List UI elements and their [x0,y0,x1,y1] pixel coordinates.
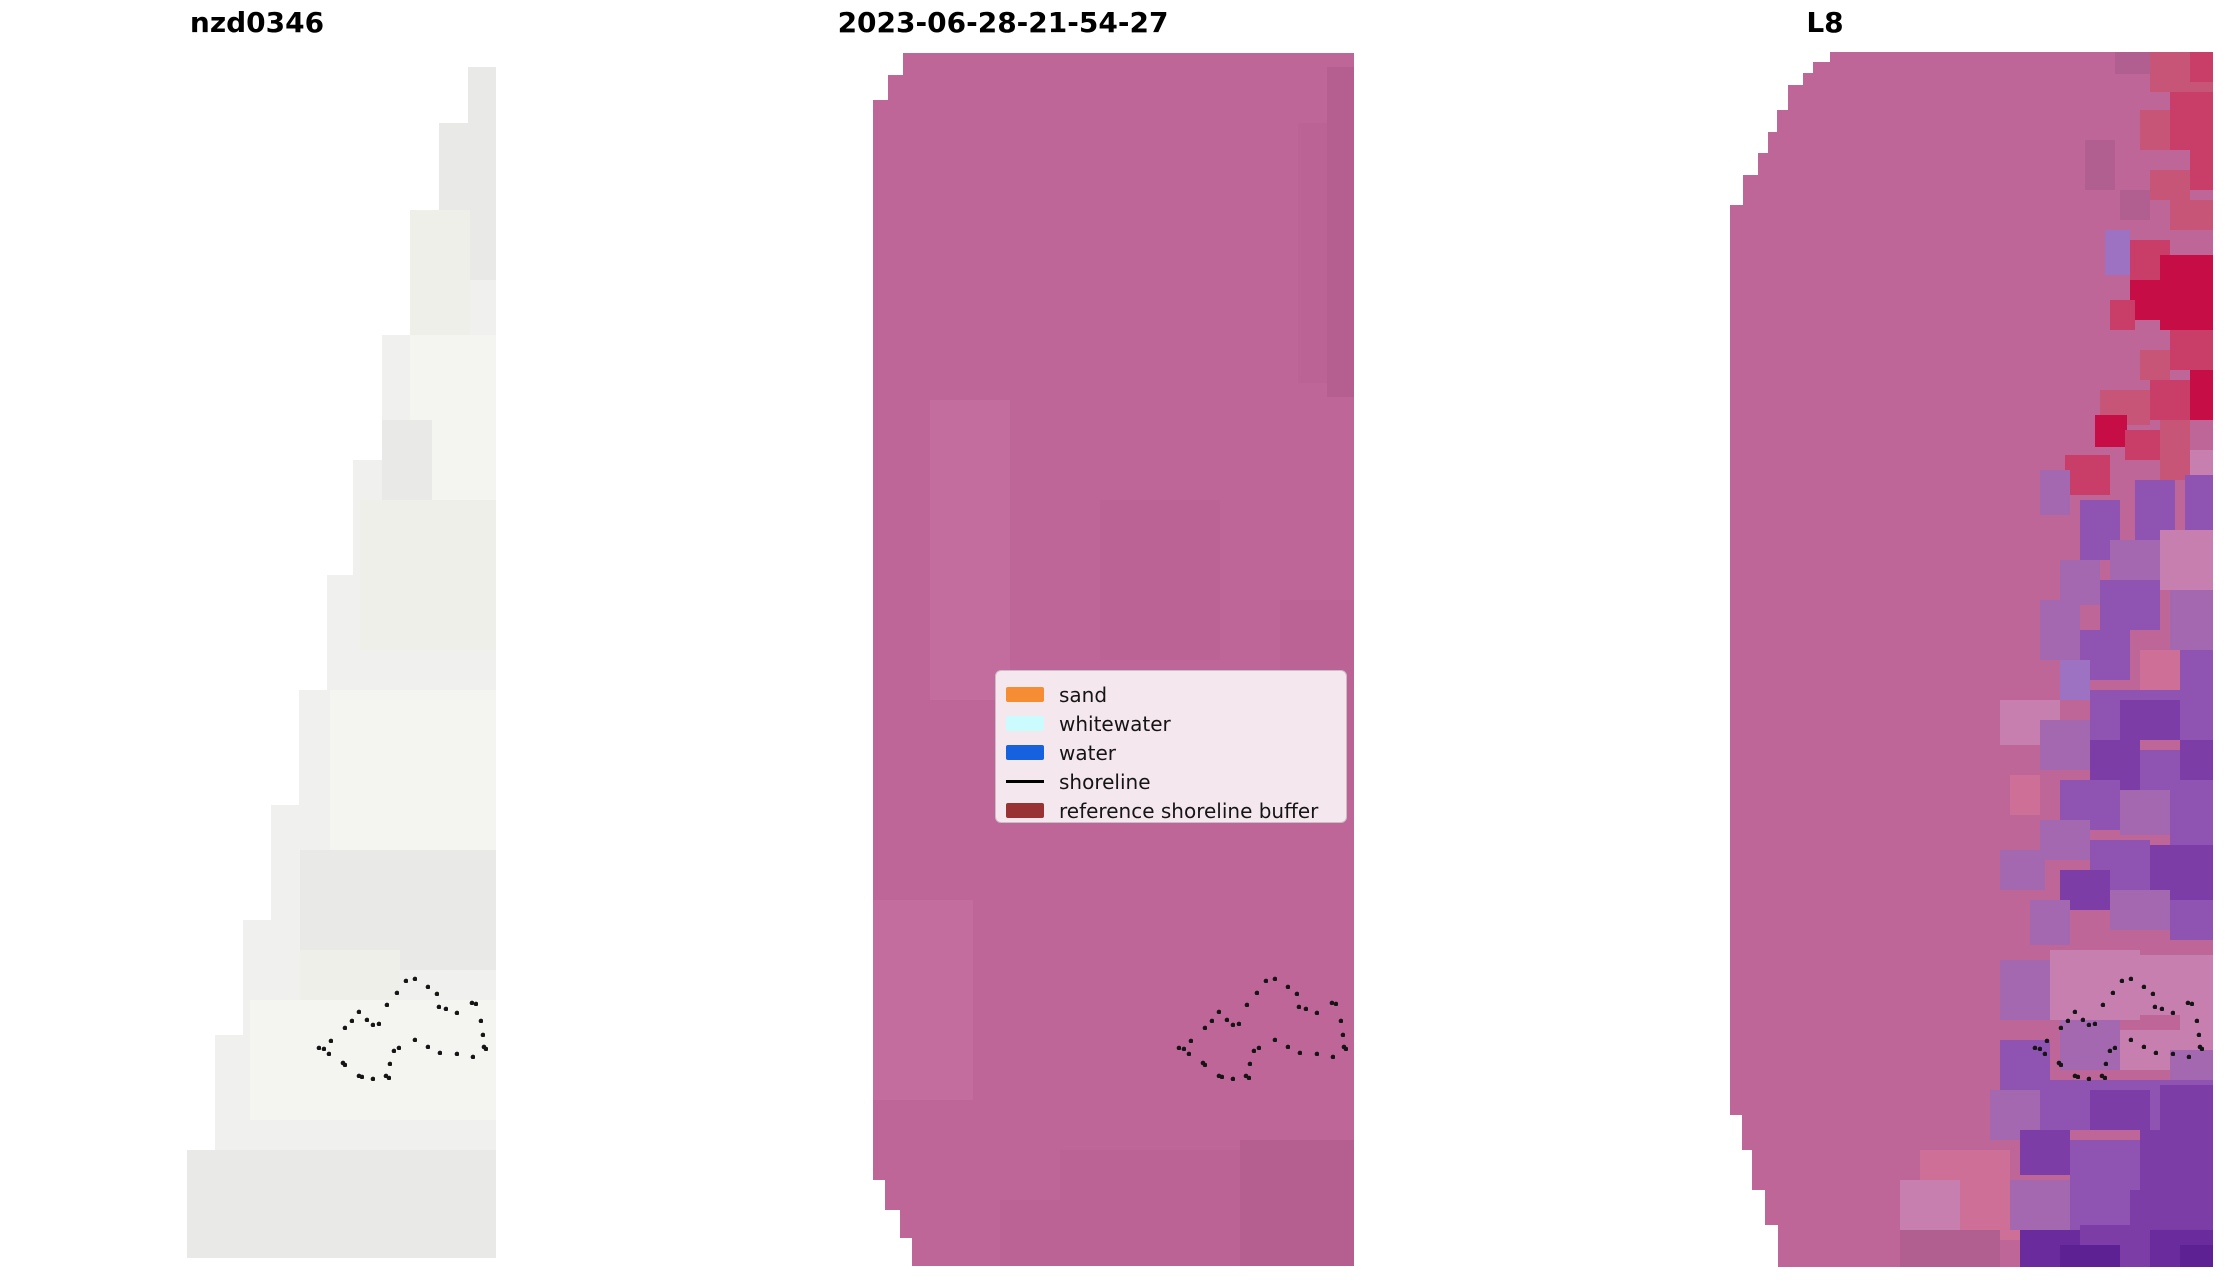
legend-entry-reference-shoreline-buffer: reference shoreline buffer [1006,796,1334,825]
panels-svg [0,0,2225,1283]
legend-entry-water: water [1006,738,1334,767]
panel-title-l8: L8 [1806,6,1843,40]
legend-entry-shoreline: shoreline [1006,767,1334,796]
figure-canvas: nzd0346 2023-06-28-21-54-27 L8 sandwhite… [0,0,2225,1283]
legend-swatch-whitewater [1006,716,1044,731]
legend-entry-whitewater: whitewater [1006,709,1334,738]
legend-label: shoreline [1059,770,1151,794]
legend-swatch-shoreline [1006,780,1044,783]
panel-capture-date-image [873,53,1354,1266]
panel-l8-image [1730,52,2213,1267]
legend-entry-sand: sand [1006,680,1334,709]
legend-swatch-sand [1006,687,1044,702]
legend-swatch-reference-shoreline-buffer [1006,803,1044,818]
legend-label: whitewater [1059,712,1171,736]
legend-swatch-water [1006,745,1044,760]
panel-title-capture-date: 2023-06-28-21-54-27 [838,6,1169,40]
legend: sandwhitewaterwatershorelinereference sh… [995,670,1347,823]
legend-rows: sandwhitewaterwatershorelinereference sh… [1006,680,1334,825]
panel-title-nzd0346: nzd0346 [190,6,324,40]
legend-label: water [1059,741,1116,765]
legend-label: sand [1059,683,1107,707]
panel-nzd0346-image [187,67,496,1258]
legend-label: reference shoreline buffer [1059,799,1318,823]
